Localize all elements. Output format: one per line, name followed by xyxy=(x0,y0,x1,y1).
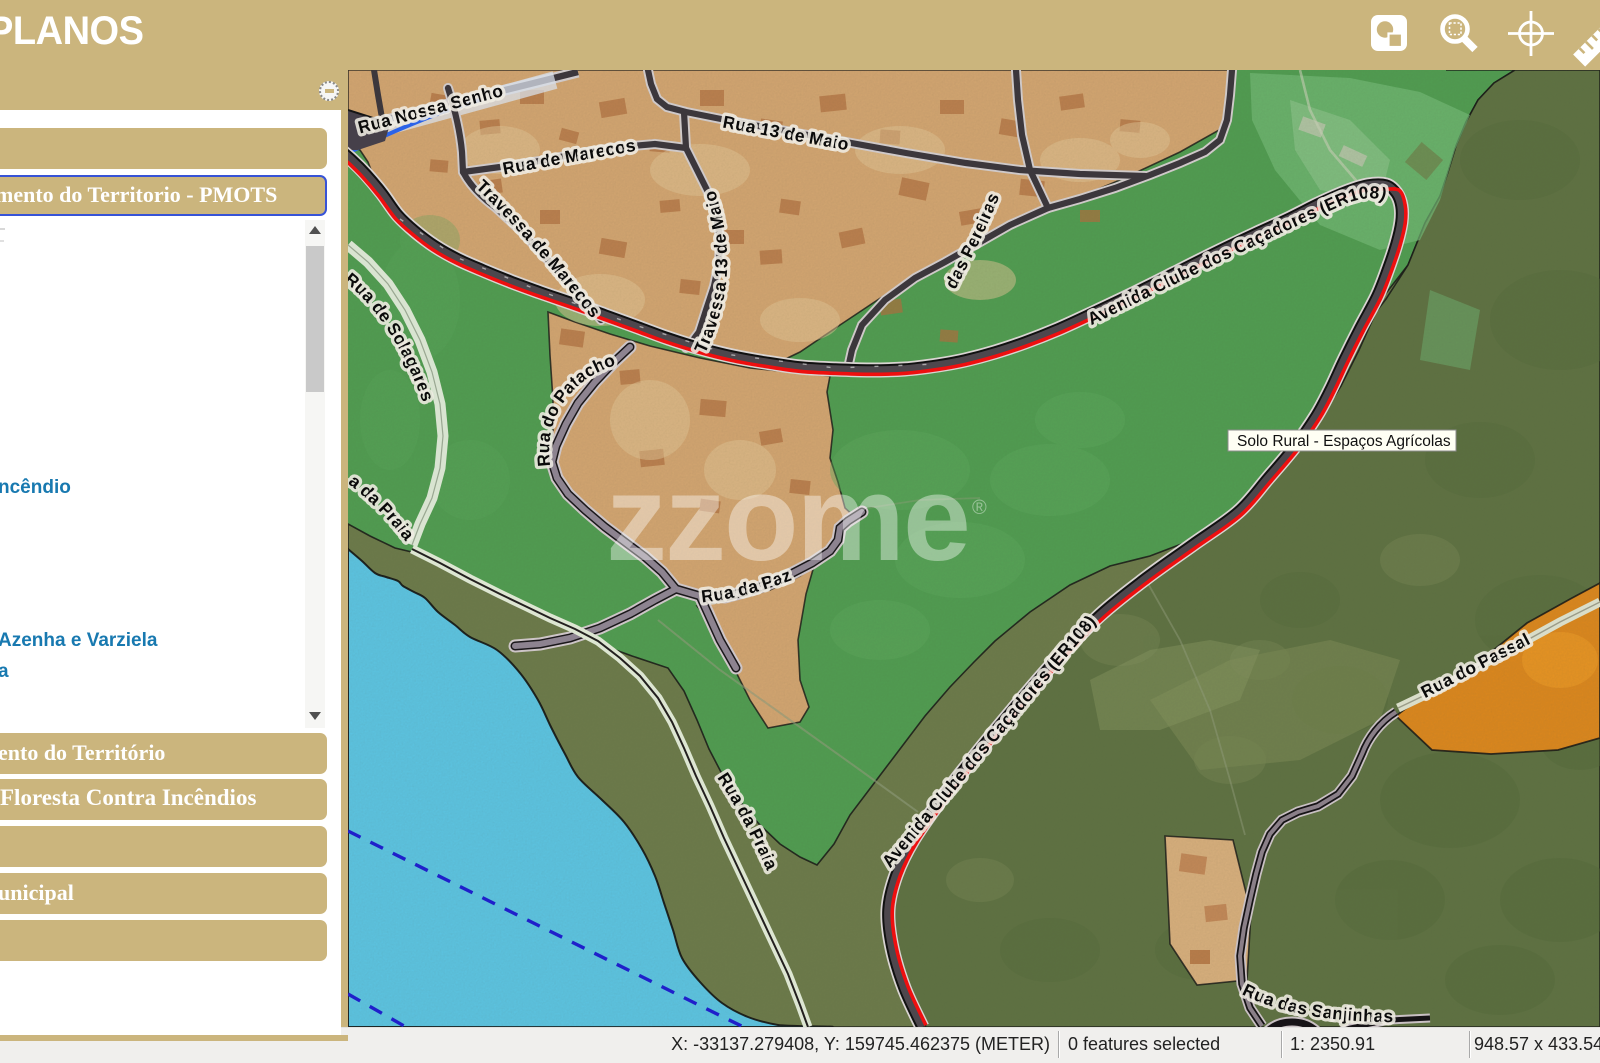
svg-text:zzome: zzome xyxy=(606,450,969,586)
svg-text:Solo Rural - Espaços Agrícolas: Solo Rural - Espaços Agrícolas xyxy=(1237,433,1451,450)
svg-text:®: ® xyxy=(972,497,987,519)
